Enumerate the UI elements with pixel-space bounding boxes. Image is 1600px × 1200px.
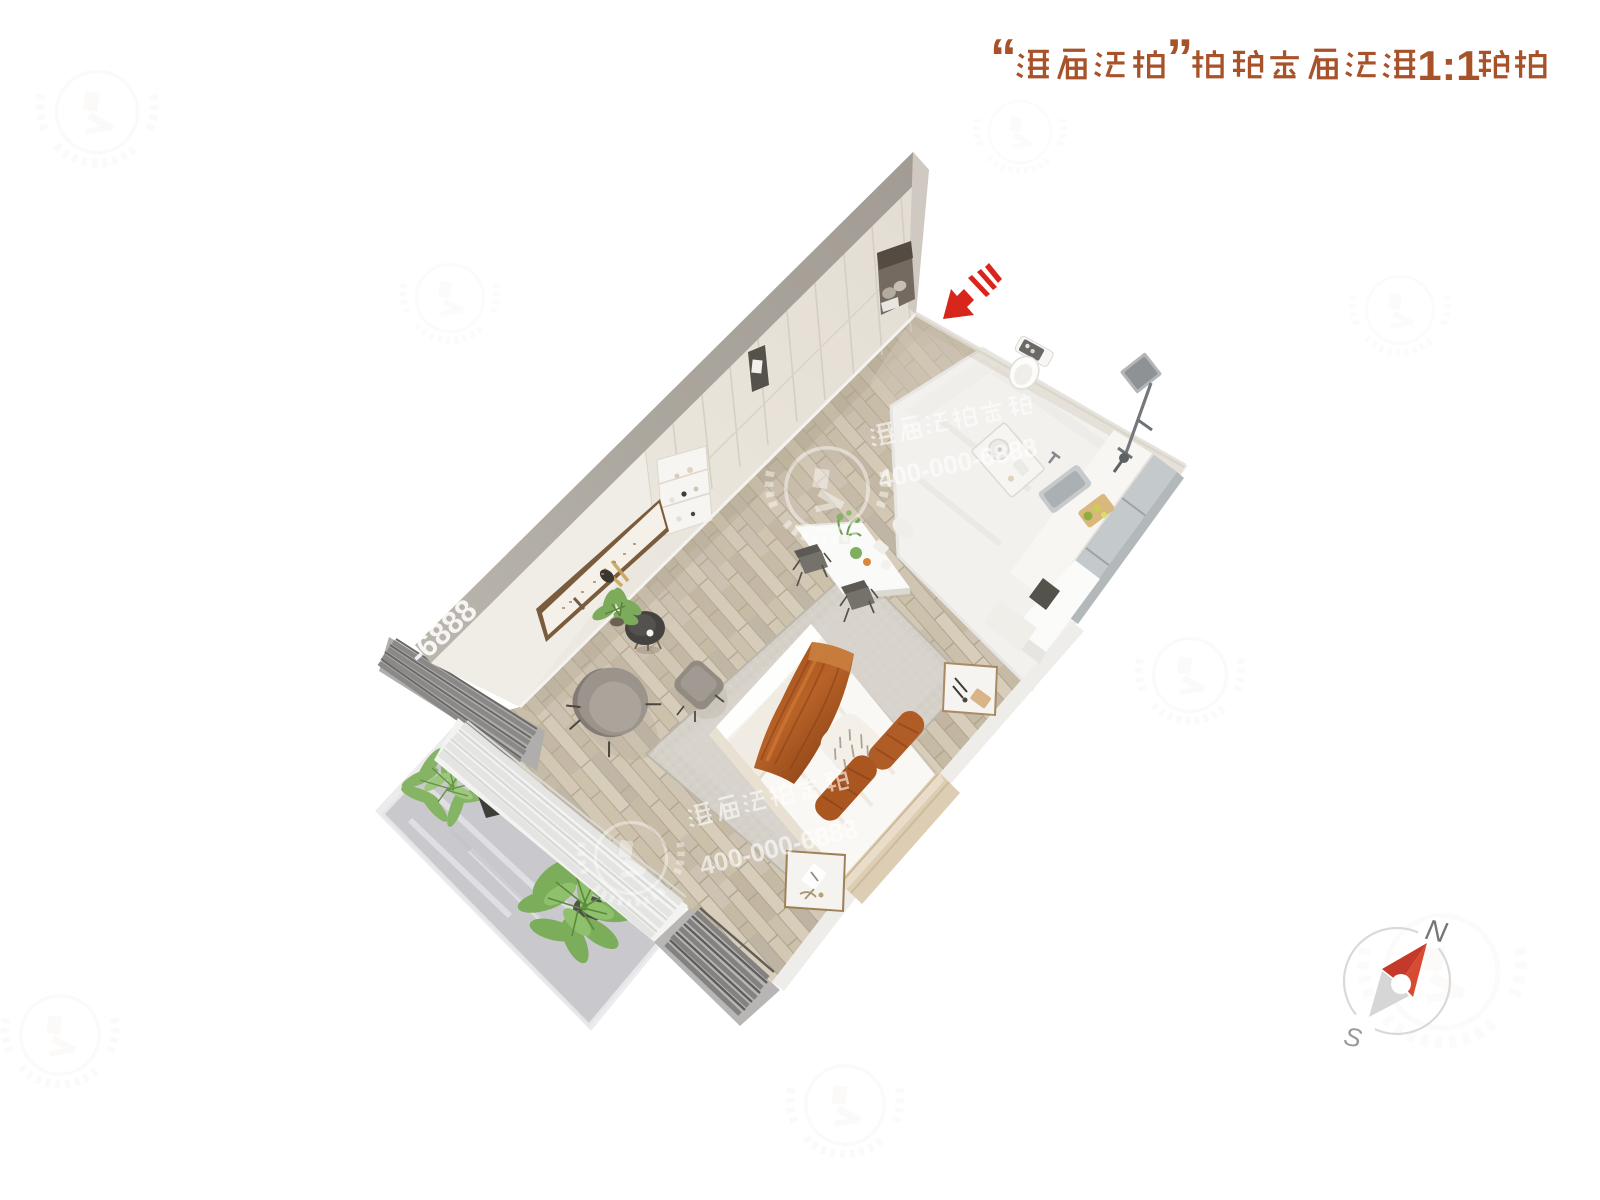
svg-text:”: ” <box>1166 29 1193 87</box>
svg-text:“: “ <box>990 29 1017 87</box>
svg-text:1:1: 1:1 <box>1417 43 1480 90</box>
